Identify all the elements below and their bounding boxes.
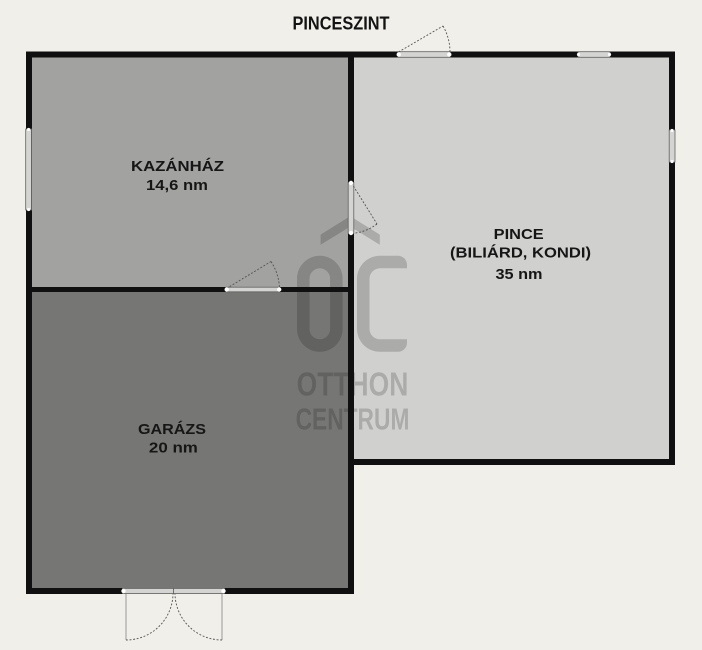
svg-text:PINCE: PINCE bbox=[494, 226, 544, 243]
svg-text:20 nm: 20 nm bbox=[149, 440, 198, 457]
svg-text:GARÁZS: GARÁZS bbox=[138, 421, 206, 438]
svg-text:KAZÁNHÁZ: KAZÁNHÁZ bbox=[131, 158, 224, 175]
svg-text:35 nm: 35 nm bbox=[496, 266, 543, 283]
svg-text:(BILIÁRD, KONDI): (BILIÁRD, KONDI) bbox=[450, 245, 591, 262]
svg-text:PINCESZINT: PINCESZINT bbox=[293, 14, 390, 34]
svg-text:14,6 nm: 14,6 nm bbox=[146, 177, 208, 194]
